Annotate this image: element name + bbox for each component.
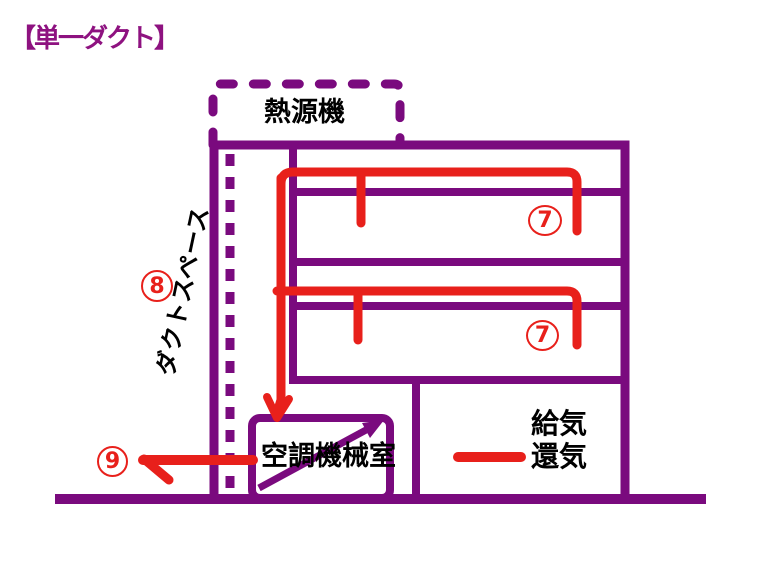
diagram-title: 【単一ダクト】 [10,18,178,55]
circled-number-7-floor1: 7 [528,205,562,236]
legend-labels: 給気 還気 [531,408,587,474]
legend-supply-label: 給気 [531,408,587,441]
diagram-drawing [0,0,768,561]
legend-return-label: 還気 [531,441,587,474]
single-duct-diagram: 【単一ダクト】 熱源機 ダクトスペース 空調機械室 給気 還気 7 7 8 9 [0,0,768,561]
heat-source-label: 熱源機 [264,97,345,128]
circled-number-7-floor2: 7 [526,320,559,351]
circled-number-9-exhaust: 9 [97,446,128,477]
machine-room-label: 空調機械室 [261,441,396,472]
circled-number-8-duct-space: 8 [141,270,173,302]
ahu-diagonal-arrowhead [362,420,384,438]
main-riser-duct [277,178,281,413]
